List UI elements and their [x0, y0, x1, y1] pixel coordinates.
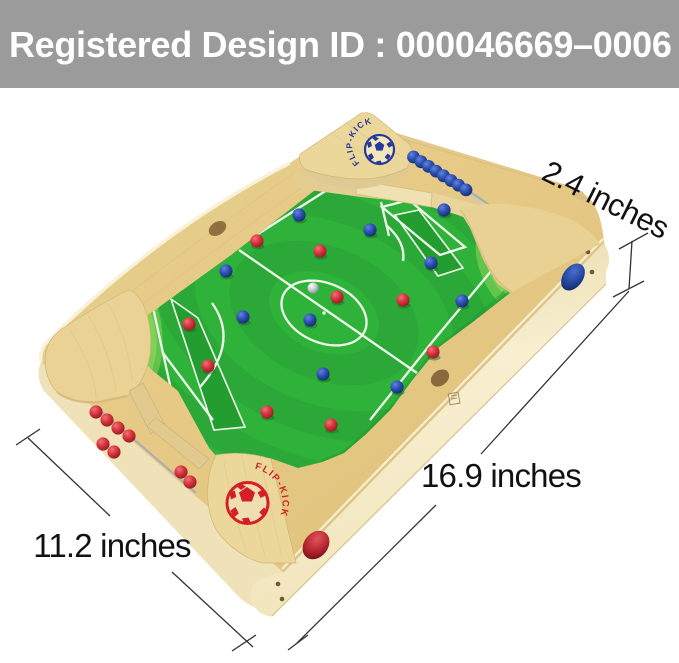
svg-text:11.2 inches: 11.2 inches: [33, 527, 191, 564]
svg-text:16.9 inches: 16.9 inches: [421, 457, 581, 494]
